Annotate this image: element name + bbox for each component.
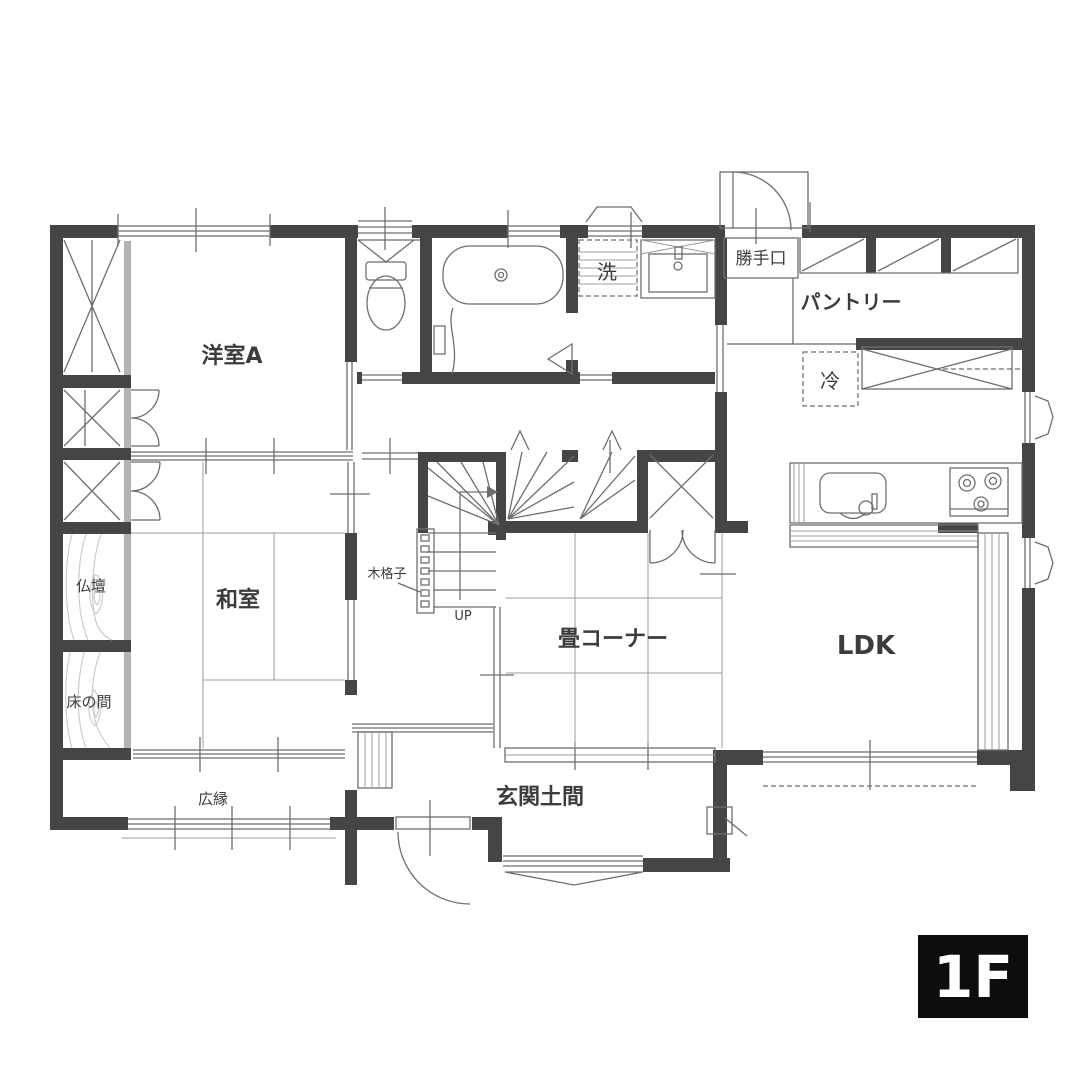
front-swing-door xyxy=(394,800,472,904)
washroom-door-opening xyxy=(580,372,612,384)
entrance-sliding-door xyxy=(503,851,643,885)
label-ldk: LDK xyxy=(837,631,896,661)
floor-badge-label: 1F xyxy=(933,943,1013,1011)
floor-badge: 1F xyxy=(918,935,1028,1018)
label-yoshitsu-a: 洋室A xyxy=(201,343,262,369)
window-bay-east-2 xyxy=(1022,538,1053,588)
label-tokonoma: 床の間 xyxy=(66,693,111,711)
toilet xyxy=(358,240,420,330)
yoshitsu-a-door-opening xyxy=(345,362,357,450)
windows-and-openings xyxy=(118,172,1053,904)
label-genkan-doma: 玄関土間 xyxy=(496,784,584,810)
label-tatami-corner: 畳コーナー xyxy=(558,627,668,652)
window-bath xyxy=(508,210,560,248)
label-butsudan: 仏壇 xyxy=(76,577,106,595)
label-pantry: パントリー xyxy=(801,290,902,314)
washbasin xyxy=(641,240,715,298)
pantry-shelves xyxy=(727,202,1018,344)
toilet-door-opening xyxy=(362,372,402,384)
label-hiroen: 広縁 xyxy=(198,790,228,808)
window-toilet xyxy=(358,207,412,250)
label-laundry: 洗 xyxy=(597,260,617,284)
bathtub xyxy=(434,246,563,374)
floor-plan-drawing: 洋室A 和室 仏壇 床の間 広縁 玄関土間 畳コーナー LDK パントリー 勝手… xyxy=(0,0,1080,1080)
stove xyxy=(950,468,1008,516)
label-wood-lattice: 木格子 xyxy=(367,566,406,582)
kitchen-counter xyxy=(790,463,1022,523)
window-hiroen-south xyxy=(122,806,336,850)
floor-plan-page: 洋室A 和室 仏壇 床の間 広縁 玄関土間 畳コーナー LDK パントリー 勝手… xyxy=(0,0,1080,1080)
kitchen-cupboard xyxy=(862,347,1022,389)
window-yoshitsu-a xyxy=(118,208,270,252)
label-washitsu: 和室 xyxy=(216,587,260,613)
label-katteguchi: 勝手口 xyxy=(736,249,787,269)
counter-bar xyxy=(790,525,1008,750)
window-bay-east-1 xyxy=(1022,392,1053,443)
window-ldk-south xyxy=(763,740,977,790)
window-laundry-bay xyxy=(586,207,642,248)
label-fridge: 冷 xyxy=(820,369,840,393)
tatami-corner-closet xyxy=(650,455,715,563)
katteguchi-door xyxy=(720,172,808,244)
label-stairs-up: UP xyxy=(454,609,472,624)
washroom-kitchen-opening xyxy=(715,325,727,392)
